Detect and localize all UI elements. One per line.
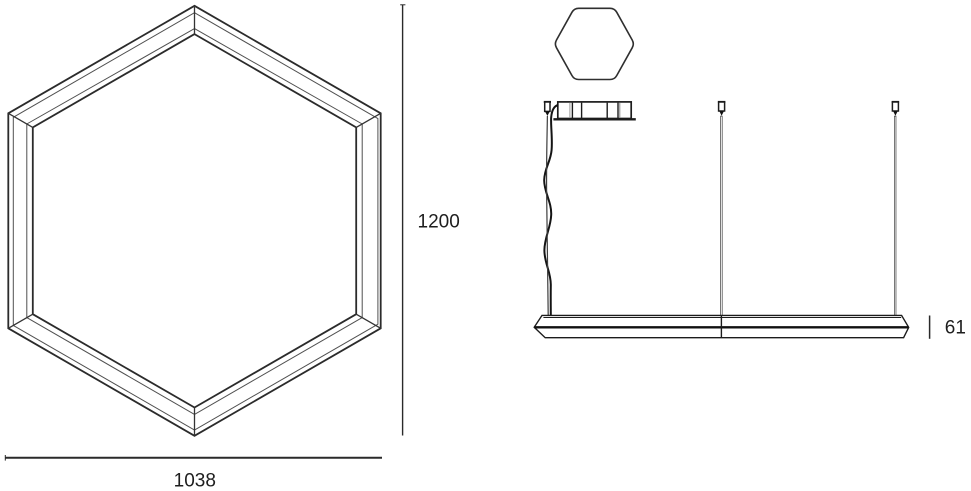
svg-text:1200: 1200 xyxy=(418,212,460,233)
svg-text:1038: 1038 xyxy=(174,470,216,491)
svg-text:61: 61 xyxy=(945,317,966,338)
